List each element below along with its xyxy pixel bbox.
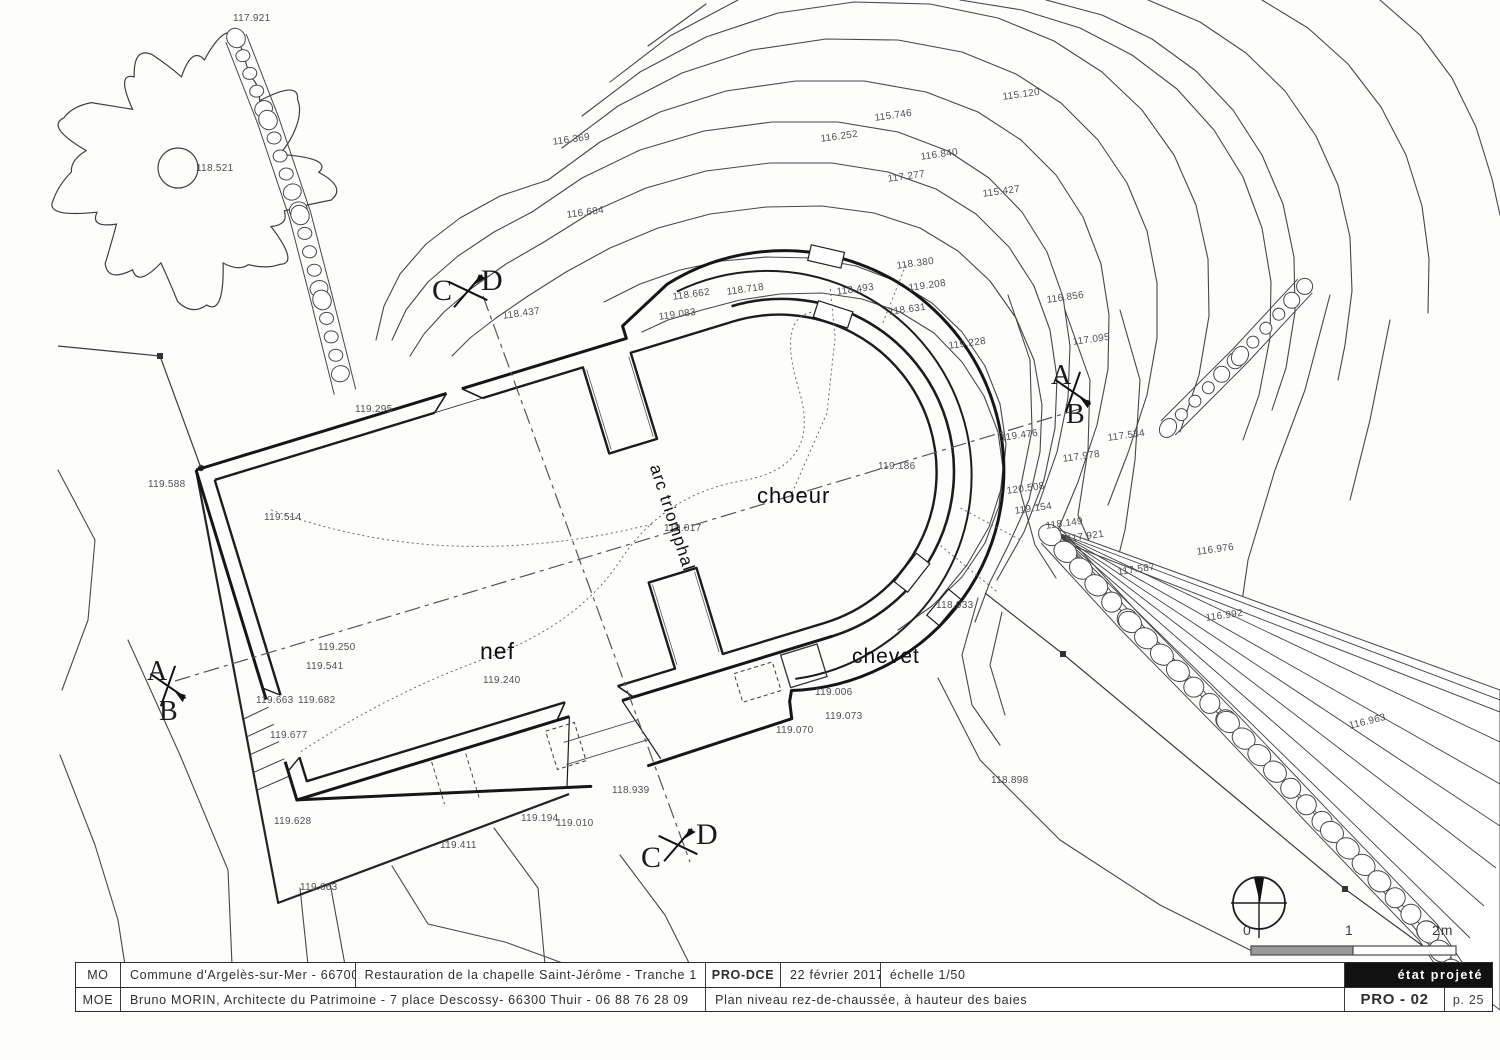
tree-canopy-outline xyxy=(52,32,337,309)
stone xyxy=(307,264,321,276)
ramp xyxy=(1034,520,1500,1010)
title-block-row-1: MO Commune d'Argelès-sur-Mer - 66700 Res… xyxy=(76,963,1492,988)
scale-bar xyxy=(1251,946,1456,955)
moe-label: MOE xyxy=(76,988,121,1011)
boundary-marker xyxy=(157,353,163,359)
tree-trunk xyxy=(158,148,198,188)
phase-label: PRO-DCE xyxy=(706,963,781,987)
title-block-row-2: MOE Bruno MORIN, Architecte du Patrimoin… xyxy=(76,988,1492,1011)
status-badge: état projeté xyxy=(1345,963,1492,987)
stone xyxy=(1245,334,1262,351)
stone xyxy=(242,67,257,81)
mo-value: Commune d'Argelès-sur-Mer - 66700 xyxy=(121,963,356,987)
stone xyxy=(281,182,303,203)
stone xyxy=(223,25,249,52)
tree xyxy=(52,32,337,309)
project-title: Restauration de la chapelle Saint-Jérôme… xyxy=(356,963,707,987)
stone-wall-northeast xyxy=(1156,275,1316,441)
west-door xyxy=(263,684,303,772)
stone xyxy=(235,49,250,63)
moe-value: Bruno MORIN, Architecte du Patrimoine - … xyxy=(121,988,706,1011)
boundary-marker xyxy=(1342,886,1348,892)
stone xyxy=(302,246,316,258)
boundary-marker xyxy=(1060,651,1066,657)
stone-wall-edge xyxy=(226,42,334,395)
stone xyxy=(273,149,288,162)
stone xyxy=(1258,320,1275,337)
chapel-inner-walls xyxy=(201,220,1023,827)
stone xyxy=(329,349,343,361)
north-compass-icon xyxy=(1231,877,1287,938)
stone xyxy=(298,227,312,239)
north-window-splay xyxy=(430,384,482,413)
stone xyxy=(249,84,264,98)
stone xyxy=(1156,415,1180,440)
terrace-enclosure xyxy=(150,393,575,902)
mo-label: MO xyxy=(76,963,121,987)
site-plan-canvas xyxy=(0,0,1500,1060)
stone xyxy=(1187,393,1203,409)
stone xyxy=(324,331,338,343)
sheet-number: PRO - 02 xyxy=(1345,988,1445,1011)
stone-wall-edge xyxy=(1161,279,1298,421)
stone xyxy=(1200,379,1216,395)
south-door xyxy=(543,680,661,787)
page-number: p. 25 xyxy=(1445,988,1492,1011)
sheet-title: Plan niveau rez-de-chaussée, à hauteur d… xyxy=(706,988,1345,1011)
contour-lines xyxy=(58,0,1500,965)
stone xyxy=(330,364,351,384)
stone-wall-northwest xyxy=(223,25,356,395)
drawing-sheet: 0 1 2m 117.921118.521115.120115.746116.2… xyxy=(0,0,1500,1060)
date-label: 22 février 2017 xyxy=(781,963,881,987)
stone xyxy=(279,167,294,180)
section-lines xyxy=(175,296,1083,862)
section-arrow-icon xyxy=(1055,372,1092,416)
stone xyxy=(1271,306,1288,323)
section-line-AB xyxy=(175,408,1083,681)
stone xyxy=(267,131,282,144)
stone xyxy=(320,312,334,324)
scale-label: échelle 1/50 xyxy=(881,963,1345,987)
title-block: MO Commune d'Argelès-sur-Mer - 66700 Res… xyxy=(75,962,1493,1012)
